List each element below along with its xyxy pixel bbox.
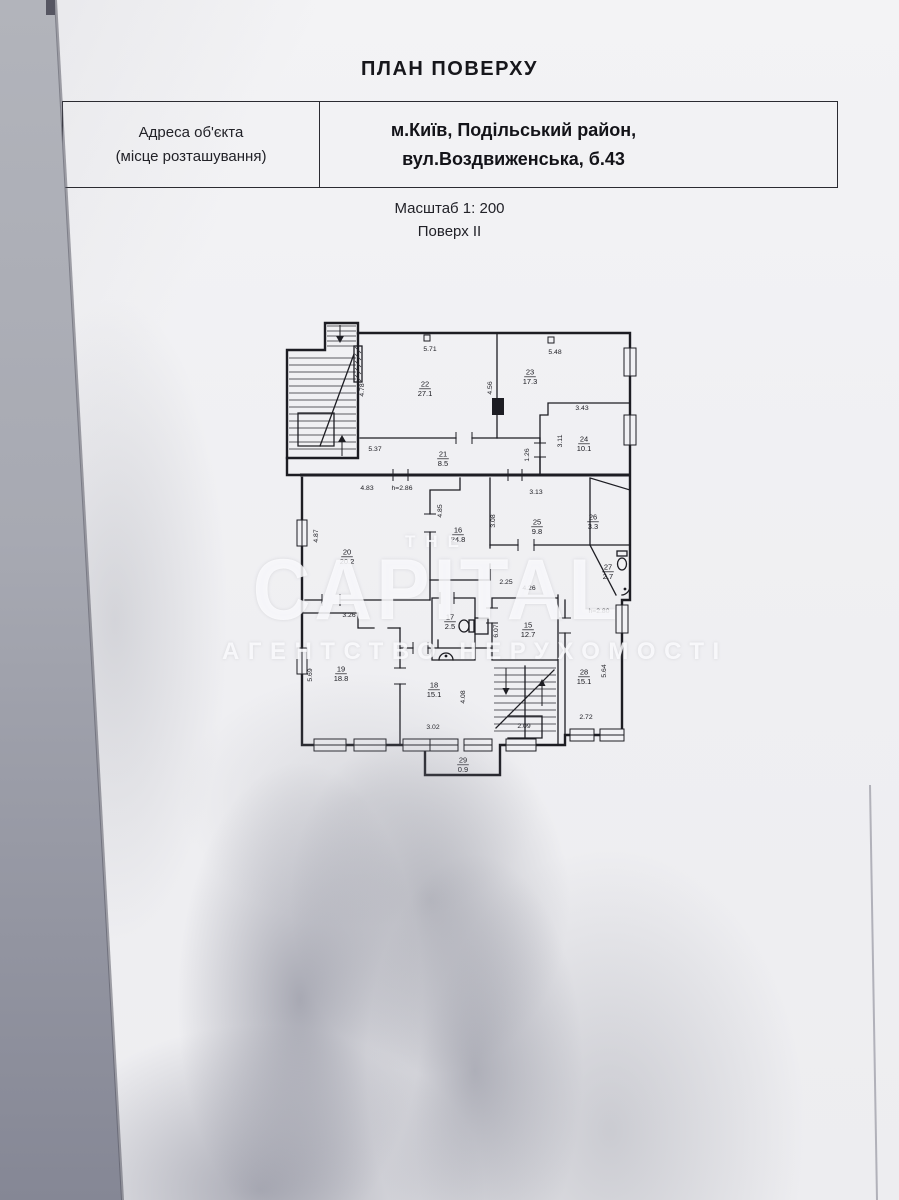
dimension-label: 3.11 xyxy=(557,434,564,447)
toilet-icon-wc27 xyxy=(617,551,630,595)
room-area: 27.1 xyxy=(418,389,433,398)
dimension-label: 5.69 xyxy=(307,668,314,681)
outer-walls xyxy=(287,323,630,775)
dimension-label: 3.26 xyxy=(342,612,355,619)
room-number: 20 xyxy=(343,548,351,557)
address-value-line2: вул.Воздвиженська, б.43 xyxy=(402,145,625,174)
room-number: 27 xyxy=(604,563,612,572)
room-number: 17 xyxy=(446,613,454,622)
room-area: 12.7 xyxy=(521,630,536,639)
dimension-label: 3.43 xyxy=(575,405,588,412)
dimension-label: 3.13 xyxy=(529,489,542,496)
floor-plan: 5.715.484.784.563.433.111.265.374.83h=2.… xyxy=(278,318,642,783)
dimension-label: 4.26 xyxy=(522,585,535,592)
dimension-label: h=2.86 xyxy=(392,485,413,492)
dimension-label: 1.26 xyxy=(524,448,531,461)
room-number: 28 xyxy=(580,668,588,677)
dimension-label: 3.08 xyxy=(490,514,497,527)
dimension-label: 5.37 xyxy=(368,446,381,453)
address-value-line1: м.Київ, Подільський район, xyxy=(391,116,636,145)
scale-text: Масштаб 1: 200 xyxy=(0,200,899,217)
page-corner-notch xyxy=(46,0,55,15)
room-number: 26 xyxy=(589,513,597,522)
room-number: 29 xyxy=(459,756,467,765)
room-area: 9.8 xyxy=(532,527,542,536)
room-area: 8.5 xyxy=(438,459,448,468)
room-area: 2.5 xyxy=(445,622,455,631)
dimension-label: 5.48 xyxy=(548,349,561,356)
address-label-line1: Адреса об'єкта xyxy=(139,121,244,144)
room-number: 25 xyxy=(533,518,541,527)
address-table: Адреса об'єкта (місце розташування) м.Ки… xyxy=(62,101,838,188)
dimension-label: h=2.80 xyxy=(589,608,610,615)
dimension-label: 2.09 xyxy=(517,723,530,730)
room-number: 15 xyxy=(524,621,532,630)
room-area: 17.3 xyxy=(523,377,538,386)
dimension-label: 4.08 xyxy=(460,690,467,703)
dimension-label: 2.25 xyxy=(499,579,512,586)
room-area: 0.9 xyxy=(458,765,468,774)
dimension-label: 5.71 xyxy=(423,346,436,353)
floor-text: Поверх II xyxy=(0,223,899,240)
room-area: 24.8 xyxy=(451,535,466,544)
dimension-label: 4.56 xyxy=(487,381,494,394)
room-area: 10.1 xyxy=(577,444,592,453)
room-number: 16 xyxy=(454,526,462,535)
room-area: 18.8 xyxy=(334,674,349,683)
room-area: 15.1 xyxy=(427,690,442,699)
room-area: 20.2 xyxy=(340,557,355,566)
dimension-label: 4.85 xyxy=(437,504,444,517)
dimension-label: 4.87 xyxy=(313,529,320,542)
address-label-cell: Адреса об'єкта (місце розташування) xyxy=(63,102,320,187)
address-label-line2: (місце розташування) xyxy=(116,145,267,168)
page-title: ПЛАН ПОВЕРХУ xyxy=(0,58,899,81)
room-number: 23 xyxy=(526,368,534,377)
dimension-label: 3.02 xyxy=(426,724,439,731)
room-number: 21 xyxy=(439,450,447,459)
dimension-label: 2.72 xyxy=(579,714,592,721)
room-number: 24 xyxy=(580,435,588,444)
room-area: 15.1 xyxy=(577,677,592,686)
room-labels: 2227.12317.32410.1218.52020.21624.8259.8… xyxy=(334,368,614,775)
room-area: 3.3 xyxy=(588,522,598,531)
dimension-label: 4.83 xyxy=(360,485,373,492)
room-number: 22 xyxy=(421,380,429,389)
dimension-label: 6.07 xyxy=(493,624,500,637)
window-symbols xyxy=(297,335,636,751)
dimension-label: 5.64 xyxy=(601,664,608,677)
room-number: 18 xyxy=(430,681,438,690)
address-value-cell: м.Київ, Подільський район, вул.Воздвижен… xyxy=(320,102,837,187)
room-number: 19 xyxy=(337,665,345,674)
dimension-label: 4.78 xyxy=(359,383,366,396)
door-ticks xyxy=(322,432,571,684)
room-area: 2.7 xyxy=(603,572,613,581)
